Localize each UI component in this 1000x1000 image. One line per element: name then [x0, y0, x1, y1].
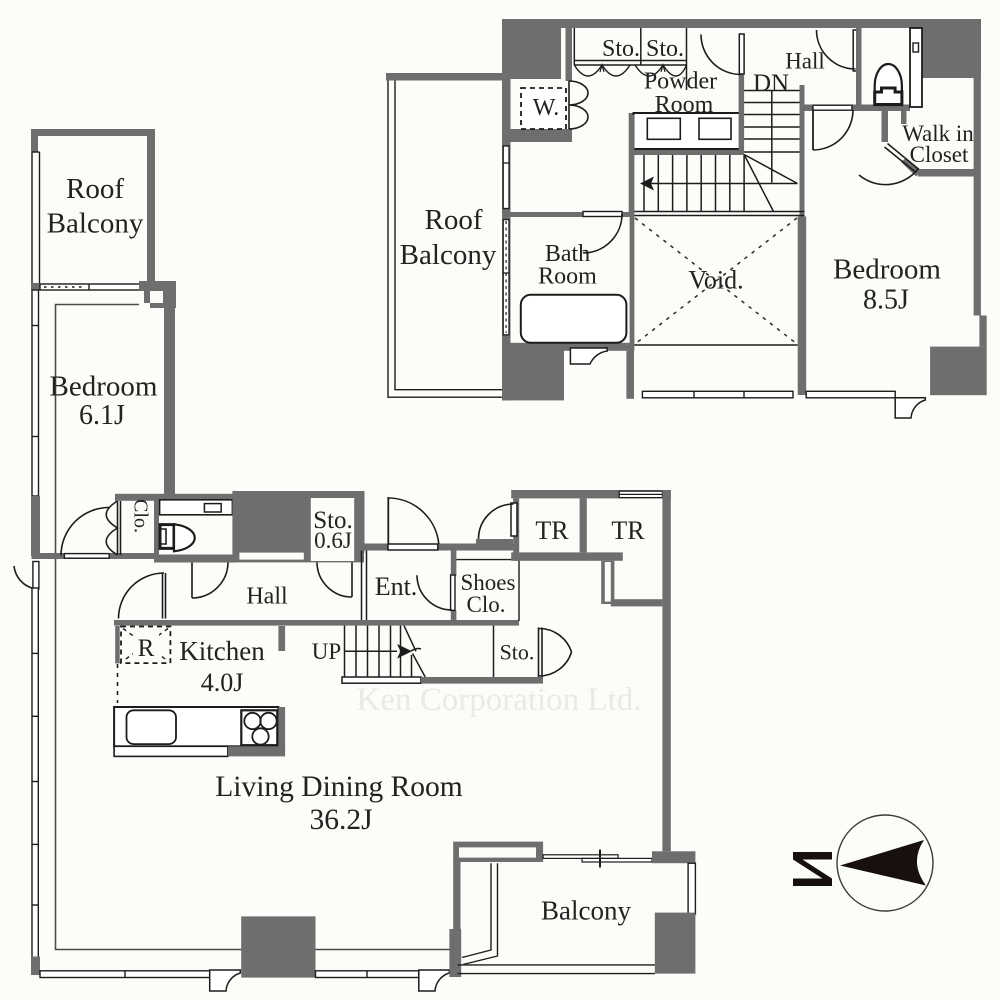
svg-text:DN: DN	[753, 70, 789, 97]
svg-text:UP: UP	[312, 639, 341, 664]
svg-text:Balcony: Balcony	[541, 896, 631, 926]
svg-text:8.5J: 8.5J	[863, 285, 909, 316]
svg-text:Bedroom: Bedroom	[50, 371, 158, 403]
svg-text:4.0J: 4.0J	[201, 668, 244, 697]
svg-text:Clo.: Clo.	[130, 499, 152, 533]
svg-text:Clo.: Clo.	[467, 592, 506, 617]
svg-text:R: R	[138, 635, 155, 662]
svg-text:Balcony: Balcony	[400, 239, 497, 271]
svg-text:TR: TR	[611, 516, 645, 545]
svg-text:Sto.: Sto.	[500, 640, 535, 665]
svg-text:Living Dining Room: Living Dining Room	[215, 771, 463, 803]
svg-text:Powder: Powder	[644, 69, 717, 95]
svg-text:6.1J: 6.1J	[79, 400, 125, 431]
svg-text:36.2J: 36.2J	[309, 804, 372, 836]
svg-text:Void.: Void.	[688, 266, 743, 295]
svg-text:Hall: Hall	[785, 49, 825, 74]
svg-text:Ken Corporation Ltd.: Ken Corporation Ltd.	[356, 682, 641, 718]
svg-text:Bedroom: Bedroom	[833, 254, 941, 286]
svg-text:Ent.: Ent.	[375, 572, 418, 601]
svg-text:W.: W.	[533, 95, 559, 121]
svg-text:Balcony: Balcony	[47, 208, 144, 240]
svg-text:Room: Room	[538, 264, 597, 290]
svg-text:Hall: Hall	[246, 584, 288, 610]
svg-text:Roof: Roof	[66, 173, 124, 205]
svg-text:Closet: Closet	[910, 142, 969, 167]
svg-text:Sto.: Sto.	[602, 36, 640, 62]
svg-text:0.6J: 0.6J	[314, 528, 352, 553]
svg-text:Roof: Roof	[425, 204, 483, 236]
svg-text:TR: TR	[535, 516, 569, 545]
svg-text:Kitchen: Kitchen	[179, 636, 265, 666]
svg-text:Sto.: Sto.	[646, 36, 684, 62]
